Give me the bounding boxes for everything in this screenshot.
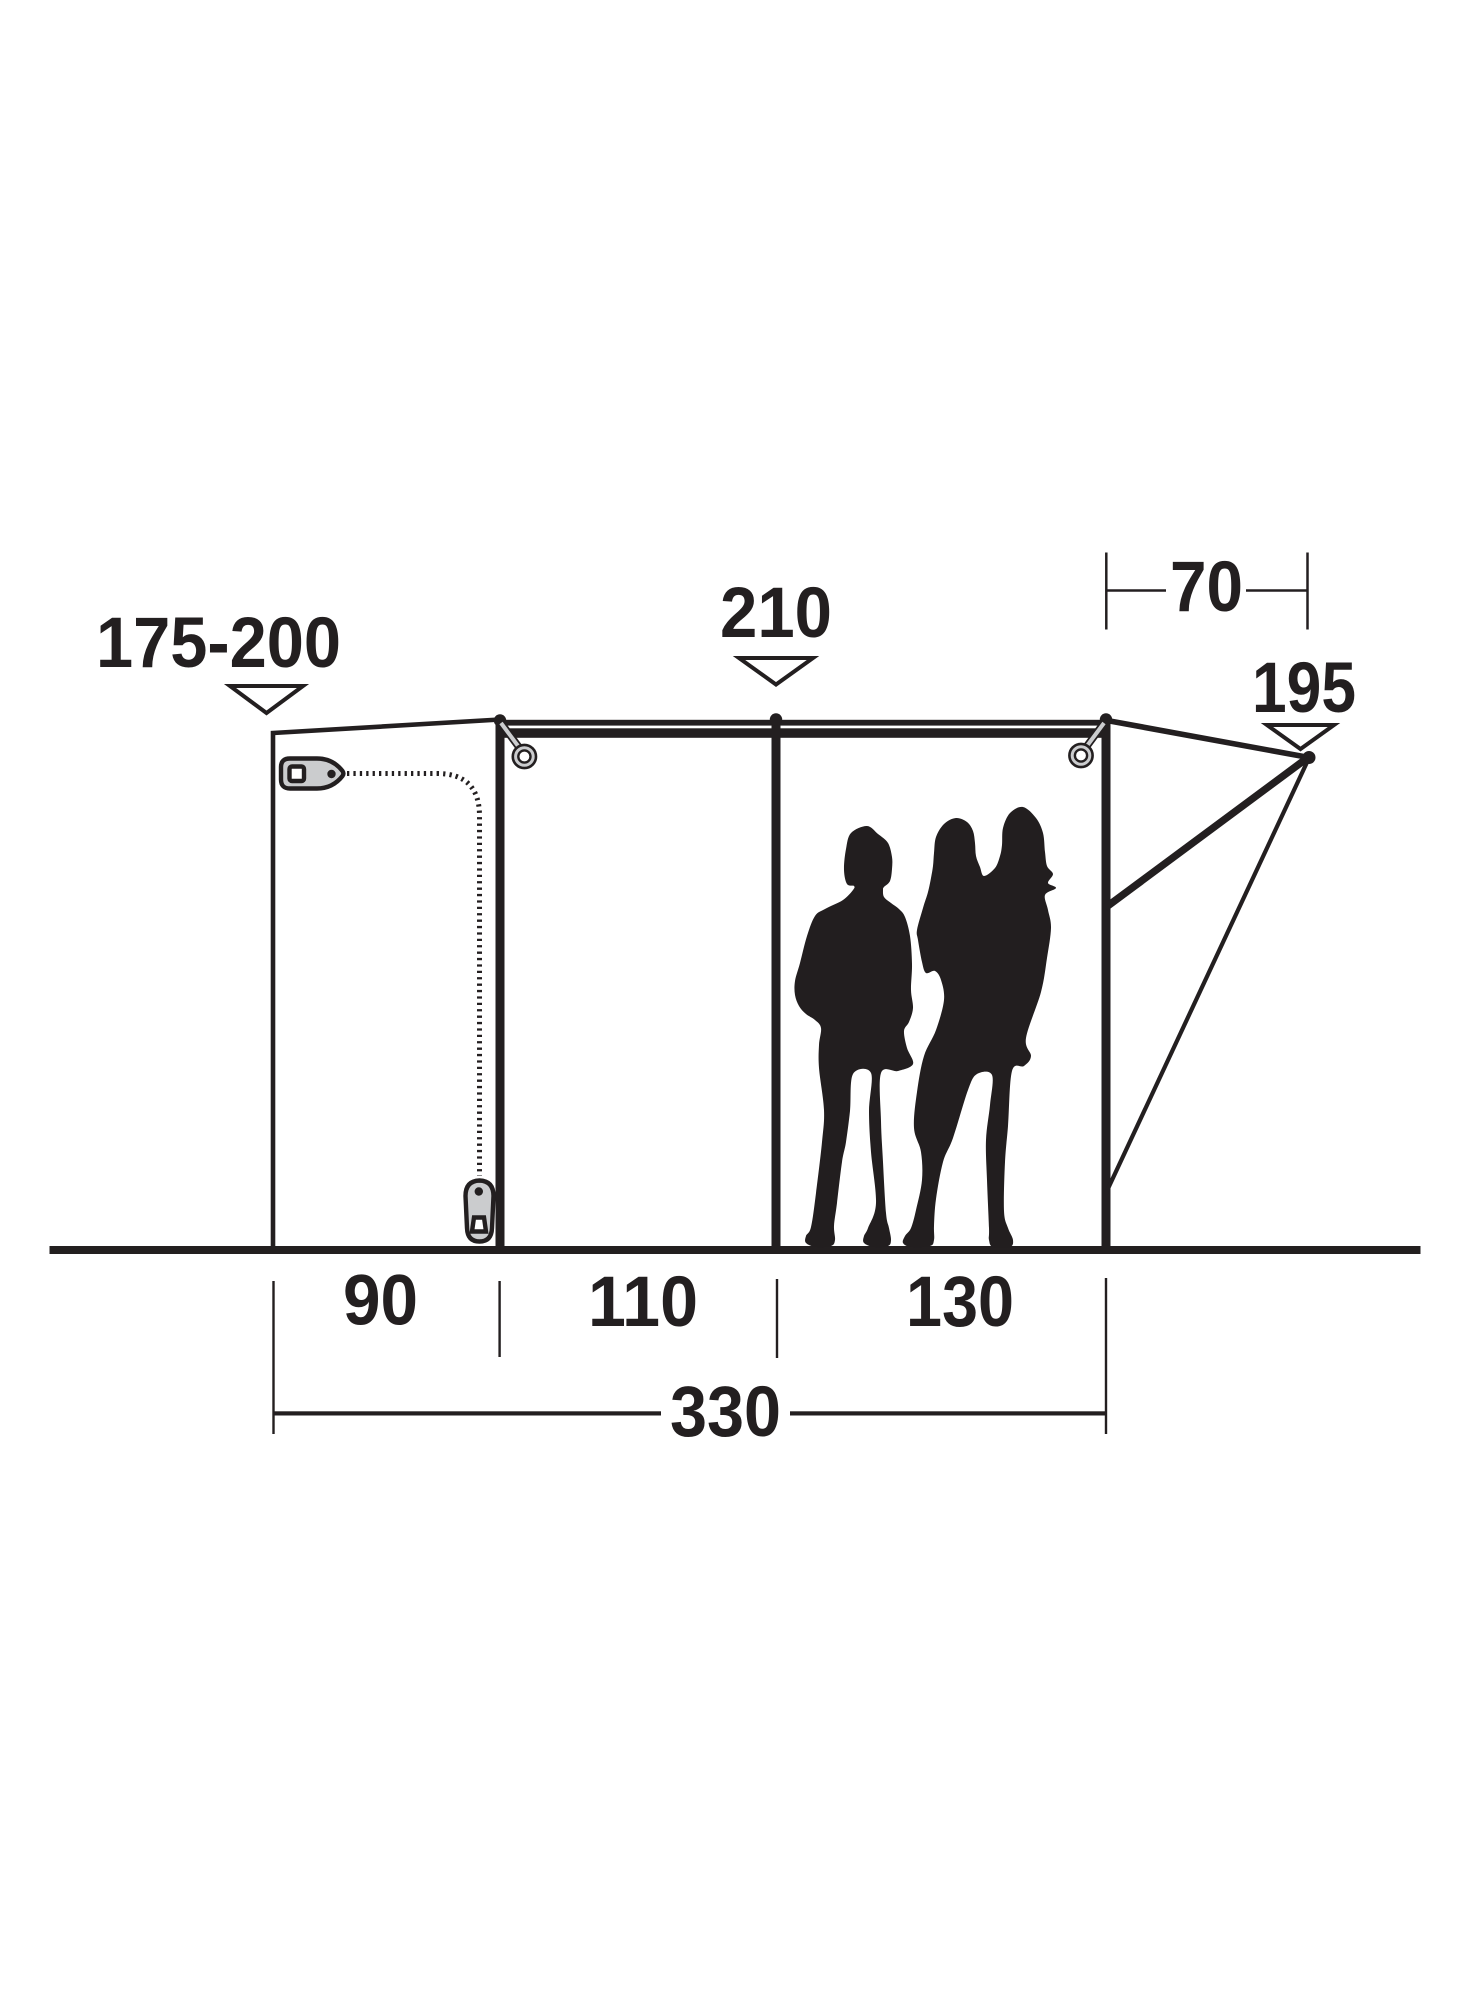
svg-text:175-200: 175-200 <box>96 604 341 683</box>
svg-text:210: 210 <box>720 574 832 653</box>
svg-text:130: 130 <box>906 1263 1014 1342</box>
svg-text:110: 110 <box>588 1263 698 1342</box>
svg-text:90: 90 <box>343 1262 418 1341</box>
svg-text:195: 195 <box>1252 649 1356 728</box>
svg-text:330: 330 <box>670 1373 781 1452</box>
svg-text:70: 70 <box>1170 548 1243 627</box>
